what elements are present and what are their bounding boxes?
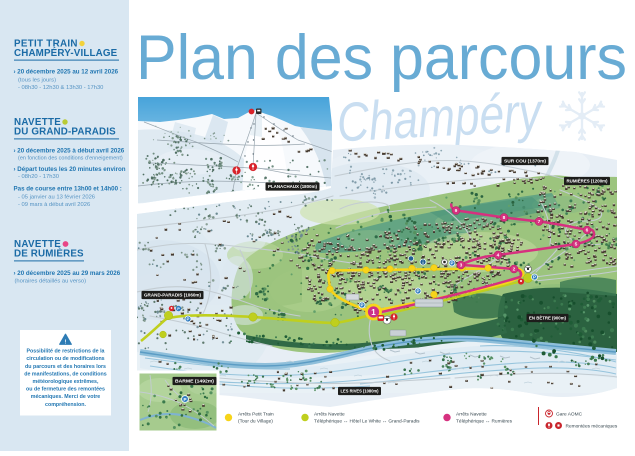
svg-text:Téléphérique ↔ Rumières: Téléphérique ↔ Rumières bbox=[456, 419, 513, 425]
svg-text:Téléphérique ↔ Hôtel Le White: Téléphérique ↔ Hôtel Le White ↔ Grand-Pa… bbox=[314, 419, 420, 425]
svg-text:Champéry: Champéry bbox=[335, 81, 545, 154]
svg-text:DU GRAND-PARADIS: DU GRAND-PARADIS bbox=[14, 126, 116, 137]
svg-text:Remontées mécaniques: Remontées mécaniques bbox=[566, 424, 618, 430]
svg-text:› Départ toutes les 20 minutes: › Départ toutes les 20 minutes environ bbox=[14, 166, 126, 173]
svg-text:(tous les jours): (tous les jours) bbox=[18, 78, 56, 84]
svg-text:4: 4 bbox=[497, 253, 500, 259]
svg-text:1: 1 bbox=[371, 308, 376, 317]
svg-text:RUMIÈRES (1200m): RUMIÈRES (1200m) bbox=[567, 177, 608, 184]
svg-text:P: P bbox=[417, 289, 420, 294]
svg-text:!: ! bbox=[65, 339, 67, 345]
svg-text:- 08h20 - 17h30: - 08h20 - 17h30 bbox=[18, 174, 59, 180]
svg-text:Arrêts Navette: Arrêts Navette bbox=[456, 412, 487, 418]
svg-text:(horaires détaillés au verso): (horaires détaillés au verso) bbox=[15, 279, 87, 285]
svg-text:3: 3 bbox=[460, 263, 463, 269]
svg-text:P: P bbox=[451, 261, 454, 266]
svg-text:Pas de course entre 13h00 et 1: Pas de course entre 13h00 et 14h00 : bbox=[14, 186, 122, 193]
svg-text:(Tour du Village): (Tour du Village) bbox=[238, 419, 273, 425]
svg-text:de manifestations, de conditio: de manifestations, de conditions bbox=[24, 371, 106, 377]
svg-text:mécaniques. Merci de votre: mécaniques. Merci de votre bbox=[31, 394, 101, 400]
svg-text:7: 7 bbox=[538, 219, 541, 225]
svg-text:5: 5 bbox=[575, 242, 578, 248]
svg-text:du parcours et des horaires lo: du parcours et des horaires lors bbox=[25, 364, 106, 370]
svg-text:6: 6 bbox=[586, 228, 589, 234]
svg-text:2: 2 bbox=[513, 267, 516, 273]
svg-text:compréhension.: compréhension. bbox=[45, 402, 86, 408]
svg-text:- 09 mars à début avril 2026: - 09 mars à début avril 2026 bbox=[18, 202, 90, 208]
svg-text:Possibilité de restrictions de: Possibilité de restrictions de la bbox=[26, 349, 104, 355]
svg-text:Arrêts Navette: Arrêts Navette bbox=[314, 412, 345, 418]
svg-text:P: P bbox=[187, 317, 190, 322]
svg-text:EN BÈTRE (900m): EN BÈTRE (900m) bbox=[529, 314, 566, 321]
svg-text:circulation ou de modification: circulation ou de modifications bbox=[26, 356, 104, 362]
svg-text:Gare AOMC: Gare AOMC bbox=[556, 412, 583, 418]
svg-text:8: 8 bbox=[503, 215, 506, 221]
svg-text:SUR COU (1370m): SUR COU (1370m) bbox=[504, 159, 546, 164]
svg-text:P: P bbox=[361, 303, 364, 308]
svg-text:i: i bbox=[422, 260, 423, 265]
svg-text:(en fonction des conditions d': (en fonction des conditions d'enneigemen… bbox=[18, 156, 123, 162]
svg-text:P: P bbox=[177, 307, 180, 311]
svg-text:- 05 janvier au 13 février 202: - 05 janvier au 13 février 2026 bbox=[18, 195, 95, 201]
svg-text:P: P bbox=[533, 275, 536, 280]
svg-text:DE RUMIÈRES: DE RUMIÈRES bbox=[14, 248, 84, 260]
svg-text:Plan des parcours: Plan des parcours bbox=[136, 23, 627, 93]
svg-text:› 20 décembre 2025 à début avr: › 20 décembre 2025 à début avril 2026 bbox=[14, 147, 125, 154]
svg-text:PLANACHAUX (1800m): PLANACHAUX (1800m) bbox=[268, 184, 317, 189]
svg-text:BARME (1492m): BARME (1492m) bbox=[175, 379, 214, 384]
svg-text:9: 9 bbox=[455, 208, 458, 214]
svg-text:- 08h30 - 12h30 & 13h30 - 17h3: - 08h30 - 12h30 & 13h30 - 17h30 bbox=[18, 85, 103, 91]
svg-text:LES RIVES (1080m): LES RIVES (1080m) bbox=[341, 389, 379, 394]
svg-text:P: P bbox=[183, 397, 186, 402]
svg-text:ou de fermeture des remontées: ou de fermeture des remontées bbox=[26, 387, 105, 393]
svg-text:› 20 décembre 2025 au 12 avril: › 20 décembre 2025 au 12 avril 2026 bbox=[14, 68, 119, 75]
svg-text:› 20 décembre 2025 au 29 mars: › 20 décembre 2025 au 29 mars 2026 bbox=[14, 270, 121, 277]
svg-text:CHAMPÉRY-VILLAGE: CHAMPÉRY-VILLAGE bbox=[14, 47, 118, 59]
svg-text:GRAND-PARADIS (1060m): GRAND-PARADIS (1060m) bbox=[144, 293, 201, 298]
svg-text:Arrêts Petit Train: Arrêts Petit Train bbox=[238, 412, 274, 418]
svg-text:météorologique extrêmes,: météorologique extrêmes, bbox=[33, 379, 99, 385]
